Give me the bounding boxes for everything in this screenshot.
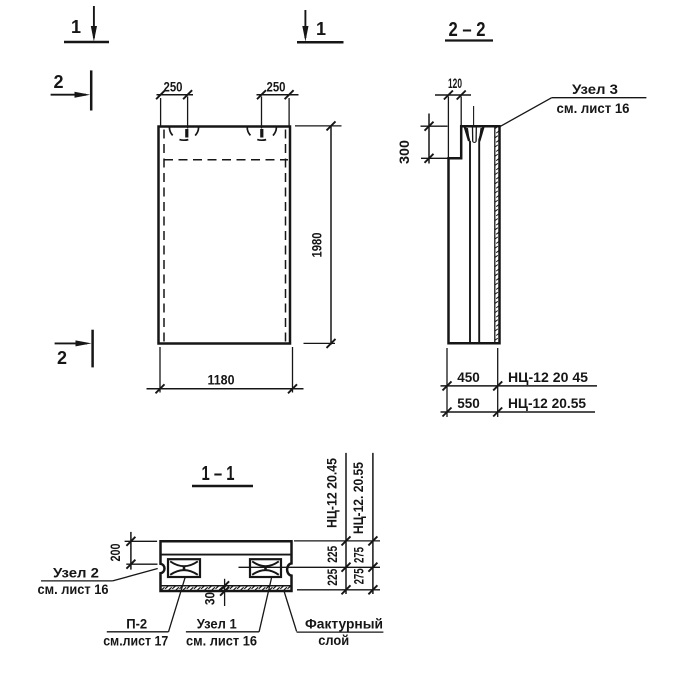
svg-text:450: 450	[457, 370, 480, 385]
svg-text:НЦ-12 20.45: НЦ-12 20.45	[325, 458, 340, 528]
svg-text:550: 550	[457, 396, 480, 411]
svg-text:30: 30	[203, 592, 218, 605]
svg-text:250: 250	[267, 80, 286, 95]
svg-text:см. лист 16: см. лист 16	[557, 100, 630, 116]
svg-text:120: 120	[448, 76, 462, 91]
svg-text:см. лист 16: см. лист 16	[186, 633, 257, 649]
svg-text:300: 300	[397, 140, 412, 164]
svg-text:2: 2	[53, 72, 63, 92]
svg-text:слой: слой	[318, 632, 349, 648]
svg-text:Фактурный: Фактурный	[305, 616, 383, 632]
svg-text:1180: 1180	[208, 373, 235, 388]
svg-text:200: 200	[108, 544, 123, 562]
svg-text:1: 1	[71, 17, 81, 37]
svg-text:2: 2	[57, 348, 67, 368]
svg-text:Узел 3: Узел 3	[572, 81, 618, 97]
svg-text:1: 1	[316, 19, 326, 39]
svg-text:Узел 1: Узел 1	[197, 616, 237, 632]
svg-text:275: 275	[352, 568, 367, 584]
svg-text:Узел 2: Узел 2	[53, 565, 99, 581]
svg-text:275: 275	[352, 547, 367, 563]
svg-text:см.лист 17: см.лист 17	[103, 632, 168, 648]
svg-text:НЦ-12. 20.55: НЦ-12. 20.55	[351, 462, 366, 534]
svg-text:2 – 2: 2 – 2	[449, 19, 486, 41]
svg-text:П-2: П-2	[126, 616, 147, 632]
svg-text:НЦ-12 20 45: НЦ-12 20 45	[508, 370, 589, 385]
svg-text:см. лист 16: см. лист 16	[38, 581, 109, 597]
svg-text:НЦ-12 20.55: НЦ-12 20.55	[508, 396, 587, 411]
svg-text:225: 225	[325, 545, 340, 562]
svg-text:1 – 1: 1 – 1	[202, 463, 235, 485]
svg-text:250: 250	[164, 80, 183, 95]
svg-text:1980: 1980	[310, 233, 325, 258]
svg-text:225: 225	[325, 568, 340, 585]
